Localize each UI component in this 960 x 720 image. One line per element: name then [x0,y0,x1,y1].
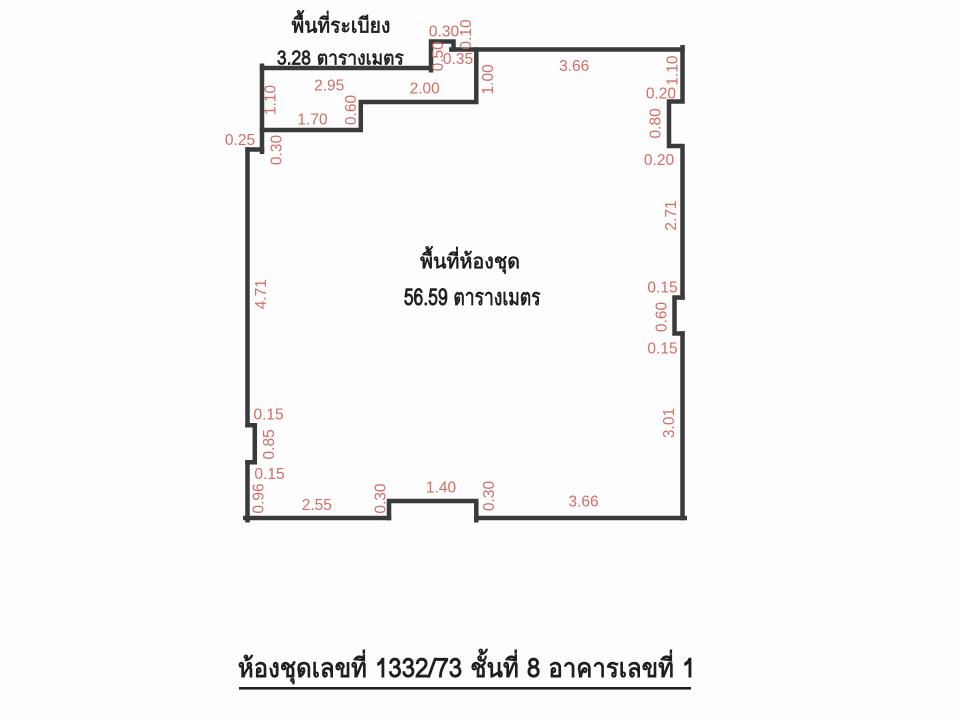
svg-text:1.70: 1.70 [297,112,328,129]
svg-text:0.25: 0.25 [225,132,255,149]
svg-text:0.60: 0.60 [653,302,670,333]
svg-text:0.20: 0.20 [646,86,677,103]
svg-text:0.10: 0.10 [458,19,475,50]
svg-text:4.71: 4.71 [253,279,270,309]
svg-text:0.15: 0.15 [647,279,677,296]
svg-text:0.30: 0.30 [268,135,285,166]
svg-text:3.66: 3.66 [569,494,599,511]
svg-text:1.10: 1.10 [262,85,279,116]
svg-text:0.80: 0.80 [648,108,665,139]
svg-text:0.60: 0.60 [343,95,360,126]
svg-text:1.00: 1.00 [480,64,497,95]
svg-text:2.55: 2.55 [302,497,332,514]
svg-text:0.50: 0.50 [430,41,447,72]
svg-text:0.30: 0.30 [372,483,389,514]
svg-text:1.40: 1.40 [426,480,457,497]
svg-text:0.30: 0.30 [481,481,498,512]
svg-text:0.15: 0.15 [254,407,284,424]
svg-text:1.10: 1.10 [665,55,682,86]
svg-text:3.01: 3.01 [661,408,678,438]
svg-text:2.71: 2.71 [663,200,680,230]
svg-text:2.00: 2.00 [410,81,441,98]
svg-text:0.96: 0.96 [251,483,268,513]
svg-text:0.15: 0.15 [647,340,677,357]
svg-text:0.30: 0.30 [429,24,460,41]
svg-text:3.66: 3.66 [559,58,589,75]
svg-text:0.85: 0.85 [261,429,278,459]
svg-text:0.15: 0.15 [254,466,284,483]
svg-text:0.20: 0.20 [644,152,675,169]
svg-text:0.35: 0.35 [443,51,473,68]
svg-text:2.95: 2.95 [314,77,344,94]
